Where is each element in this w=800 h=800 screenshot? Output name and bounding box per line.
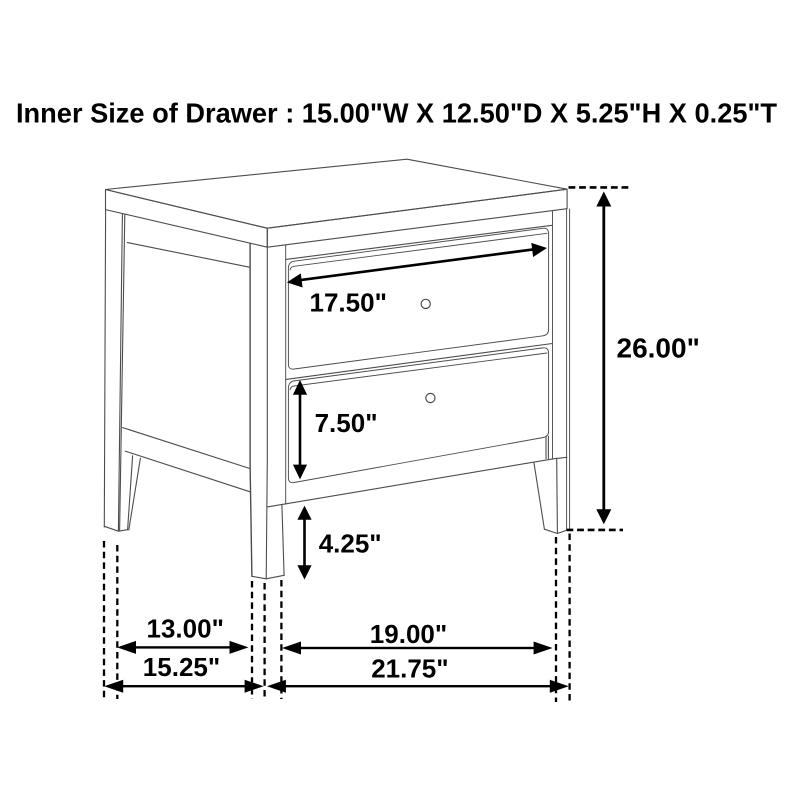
svg-text:17.50": 17.50" xyxy=(310,288,387,318)
svg-text:26.00": 26.00" xyxy=(617,333,700,364)
svg-text:13.00": 13.00" xyxy=(147,614,224,644)
svg-text:7.50": 7.50" xyxy=(315,408,378,438)
svg-text:15.25": 15.25" xyxy=(143,652,220,682)
svg-text:19.00": 19.00" xyxy=(370,619,447,649)
svg-text:21.75": 21.75" xyxy=(371,654,448,684)
svg-text:4.25": 4.25" xyxy=(319,529,382,559)
svg-text:Inner Size of Drawer : 15.00"W: Inner Size of Drawer : 15.00"W X 12.50"D… xyxy=(16,98,777,129)
